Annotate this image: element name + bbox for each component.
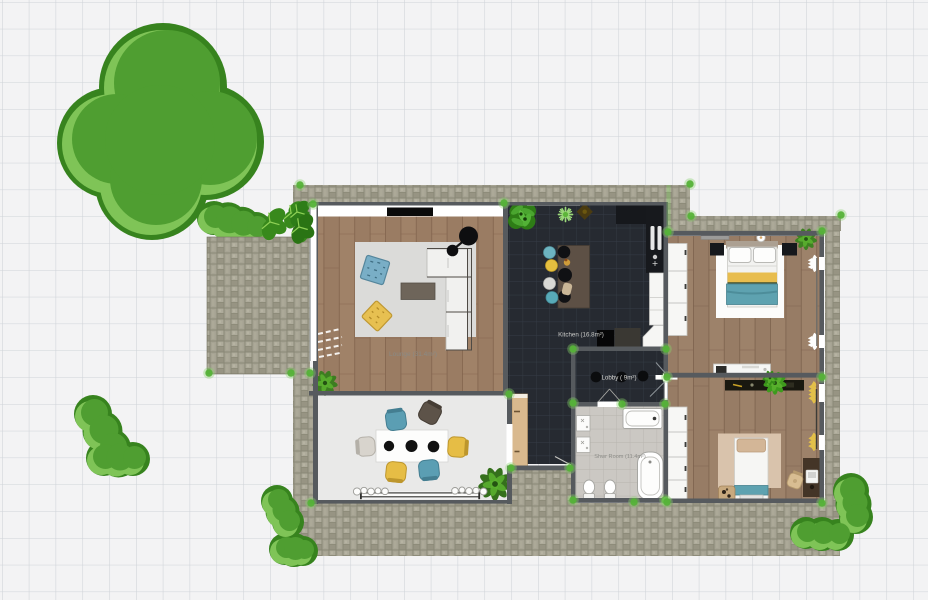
svg-text:Lobby ( 9m²): Lobby ( 9m²) <box>601 375 636 382</box>
svg-text:Kitchen (16.8m²): Kitchen (16.8m²) <box>558 332 604 339</box>
svg-text:Shwr Room (11.4m²): Shwr Room (11.4m²) <box>594 454 646 460</box>
svg-text:Lounge (31.4m²): Lounge (31.4m²) <box>389 351 437 358</box>
